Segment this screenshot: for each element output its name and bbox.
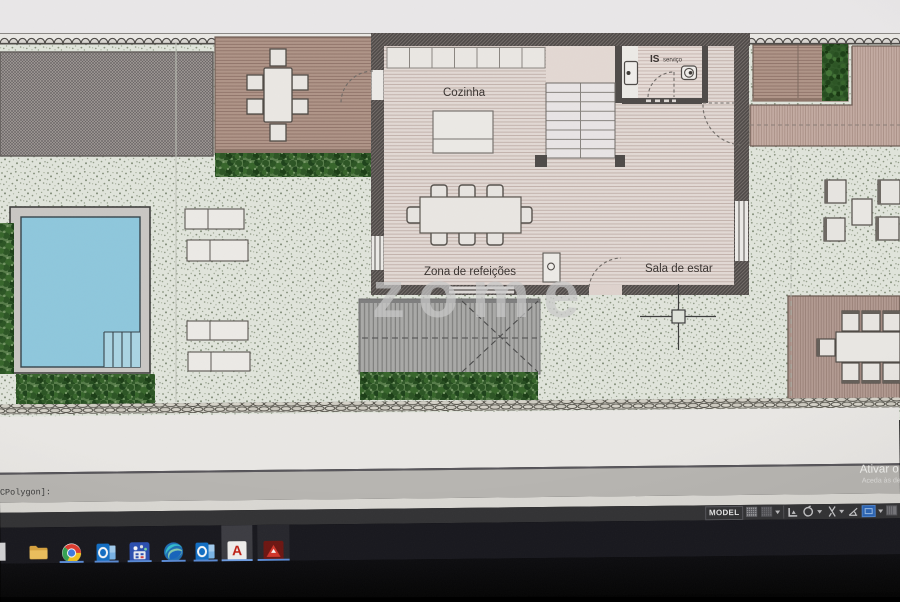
svg-text:IS: IS bbox=[650, 54, 660, 65]
svg-text:Cozinha: Cozinha bbox=[443, 87, 486, 99]
svg-text:Sala de estar: Sala de estar bbox=[645, 263, 713, 275]
svg-text:zome: zome bbox=[372, 257, 593, 331]
svg-text:serviço: serviço bbox=[663, 58, 683, 64]
